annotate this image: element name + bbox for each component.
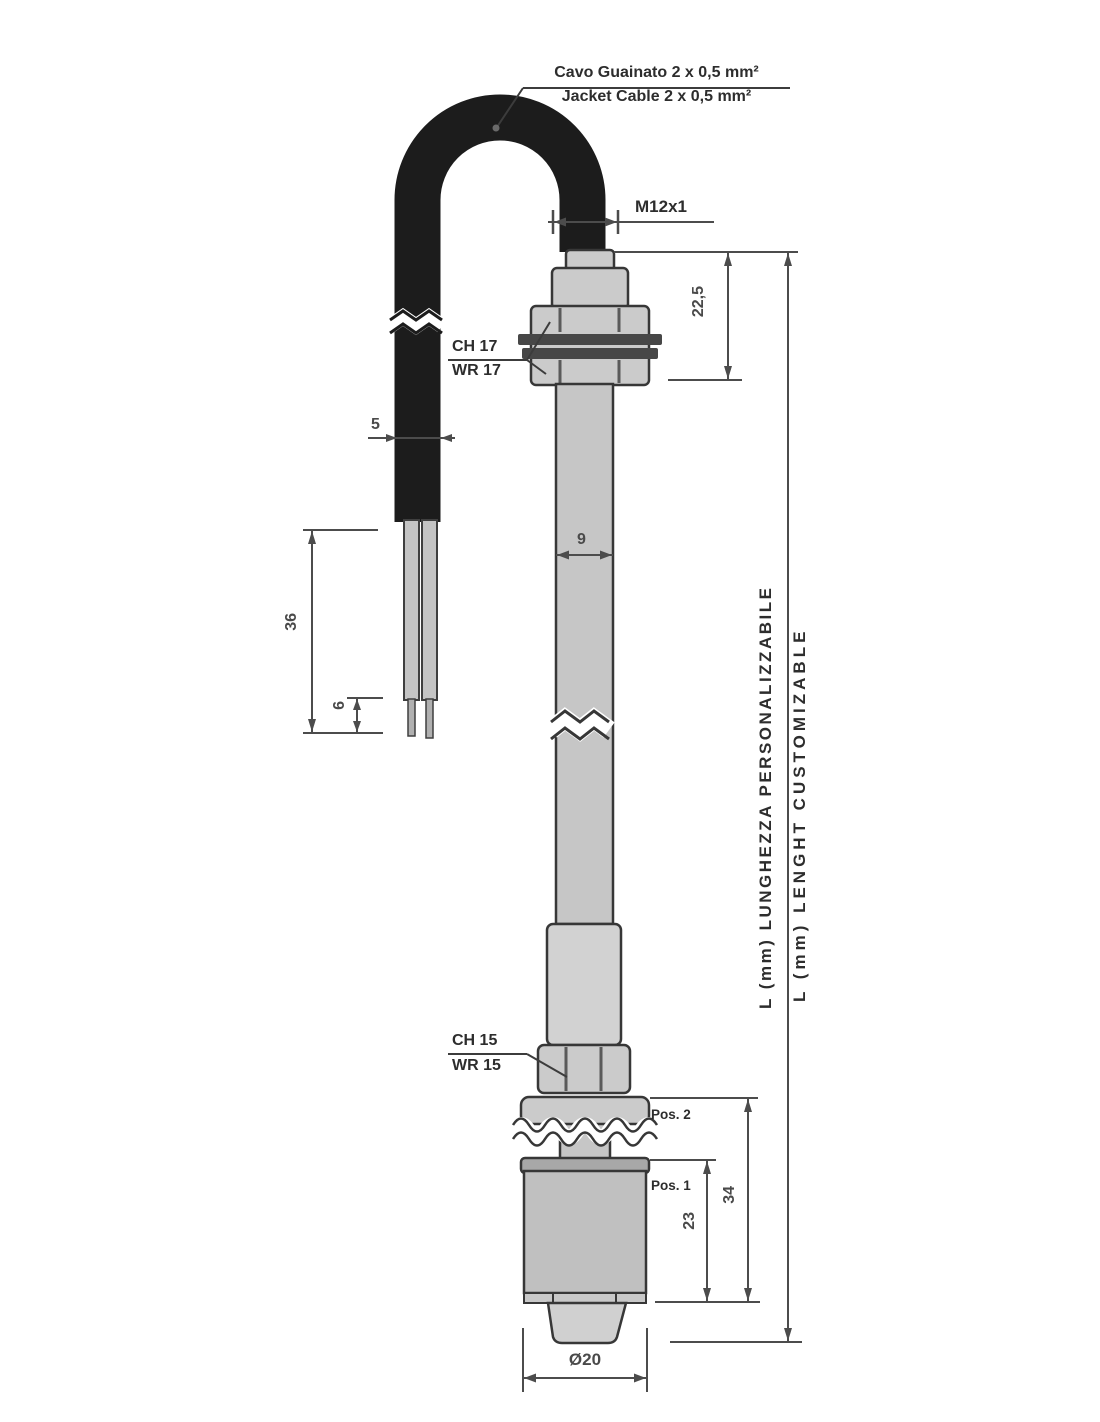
- float-tip: [548, 1303, 626, 1343]
- dim-22-5-label: 22,5: [690, 286, 708, 317]
- dim-6-lines: [347, 698, 383, 733]
- sensor-tube: [556, 384, 613, 924]
- thread-size-label: M12x1: [635, 197, 687, 217]
- cable-spec-label-en: Jacket Cable 2 x 0,5 mm²: [523, 88, 790, 106]
- dim-23-label: 23: [681, 1212, 699, 1230]
- dim-5-label: 5: [371, 416, 380, 434]
- wrench-ch17-label: CH 17: [452, 338, 497, 356]
- cable-gland: [552, 250, 628, 309]
- length-customizable-label-en: L (mm) LENGHT CUSTOMIZABLE: [790, 620, 810, 1010]
- hex-nut-ch17: [531, 306, 649, 385]
- wrench-ch15-label: CH 15: [452, 1032, 497, 1050]
- dim-34-lines: [650, 1098, 758, 1302]
- dim-34-label: 34: [721, 1186, 739, 1204]
- dim-d20-label: Ø20: [545, 1350, 625, 1370]
- technical-drawing-float-sensor: Cavo Guainato 2 x 0,5 mm² Jacket Cable 2…: [0, 0, 1100, 1422]
- wrench-wr15-label: WR 15: [452, 1057, 501, 1075]
- cable-spec-label-it: Cavo Guainato 2 x 0,5 mm²: [523, 64, 790, 82]
- float-body: [524, 1171, 646, 1303]
- length-customizable-label-it: L (mm) LUNGHEZZA PERSONALIZZABILE: [756, 578, 776, 1016]
- dim-9-label: 9: [577, 531, 586, 549]
- wrench-wr17-label: WR 17: [452, 362, 501, 380]
- sensor-drawing-canvas: [0, 0, 1100, 1422]
- lead-wires: [404, 520, 437, 738]
- pos1-label: Pos. 1: [651, 1178, 691, 1193]
- dim-6-label: 6: [331, 701, 349, 710]
- pos2-label: Pos. 2: [651, 1107, 691, 1122]
- dim-36-label: 36: [283, 613, 301, 631]
- lower-tube-body: [547, 924, 621, 1045]
